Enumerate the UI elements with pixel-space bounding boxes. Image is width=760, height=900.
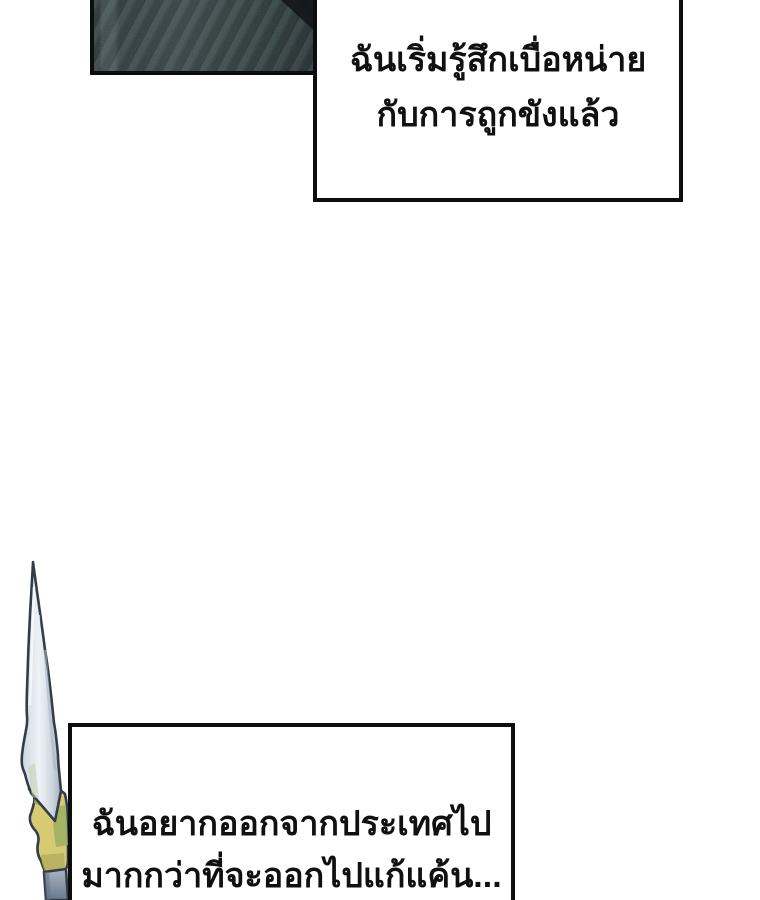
sword-illustration	[8, 555, 74, 900]
comic-page: ฉันเริ่มรู้สึกเบื่อหน่าย กับการถูกขังแล้…	[0, 0, 760, 900]
comic-panel-image	[90, 0, 318, 75]
speech-text-top: ฉันเริ่มรู้สึกเบื่อหน่าย กับการถูกขังแล้…	[317, 33, 679, 143]
speech-line: ฉันเริ่มรู้สึกเบื่อหน่าย	[317, 33, 679, 88]
speech-bubble-top: ฉันเริ่มรู้สึกเบื่อหน่าย กับการถูกขังแล้…	[313, 0, 683, 202]
panel-grain-texture	[94, 0, 314, 71]
speech-bubble-bottom: ฉันอยากออกจากประเทศไป มากกว่าที่จะออกไปแ…	[68, 723, 515, 900]
speech-line: ฉันอยากออกจากประเทศไป	[72, 798, 511, 850]
speech-line: มากกว่าที่จะออกไปแก้แค้น...	[72, 850, 511, 900]
speech-text-bottom: ฉันอยากออกจากประเทศไป มากกว่าที่จะออกไปแ…	[72, 798, 511, 900]
speech-line: กับการถูกขังแล้ว	[317, 88, 679, 143]
